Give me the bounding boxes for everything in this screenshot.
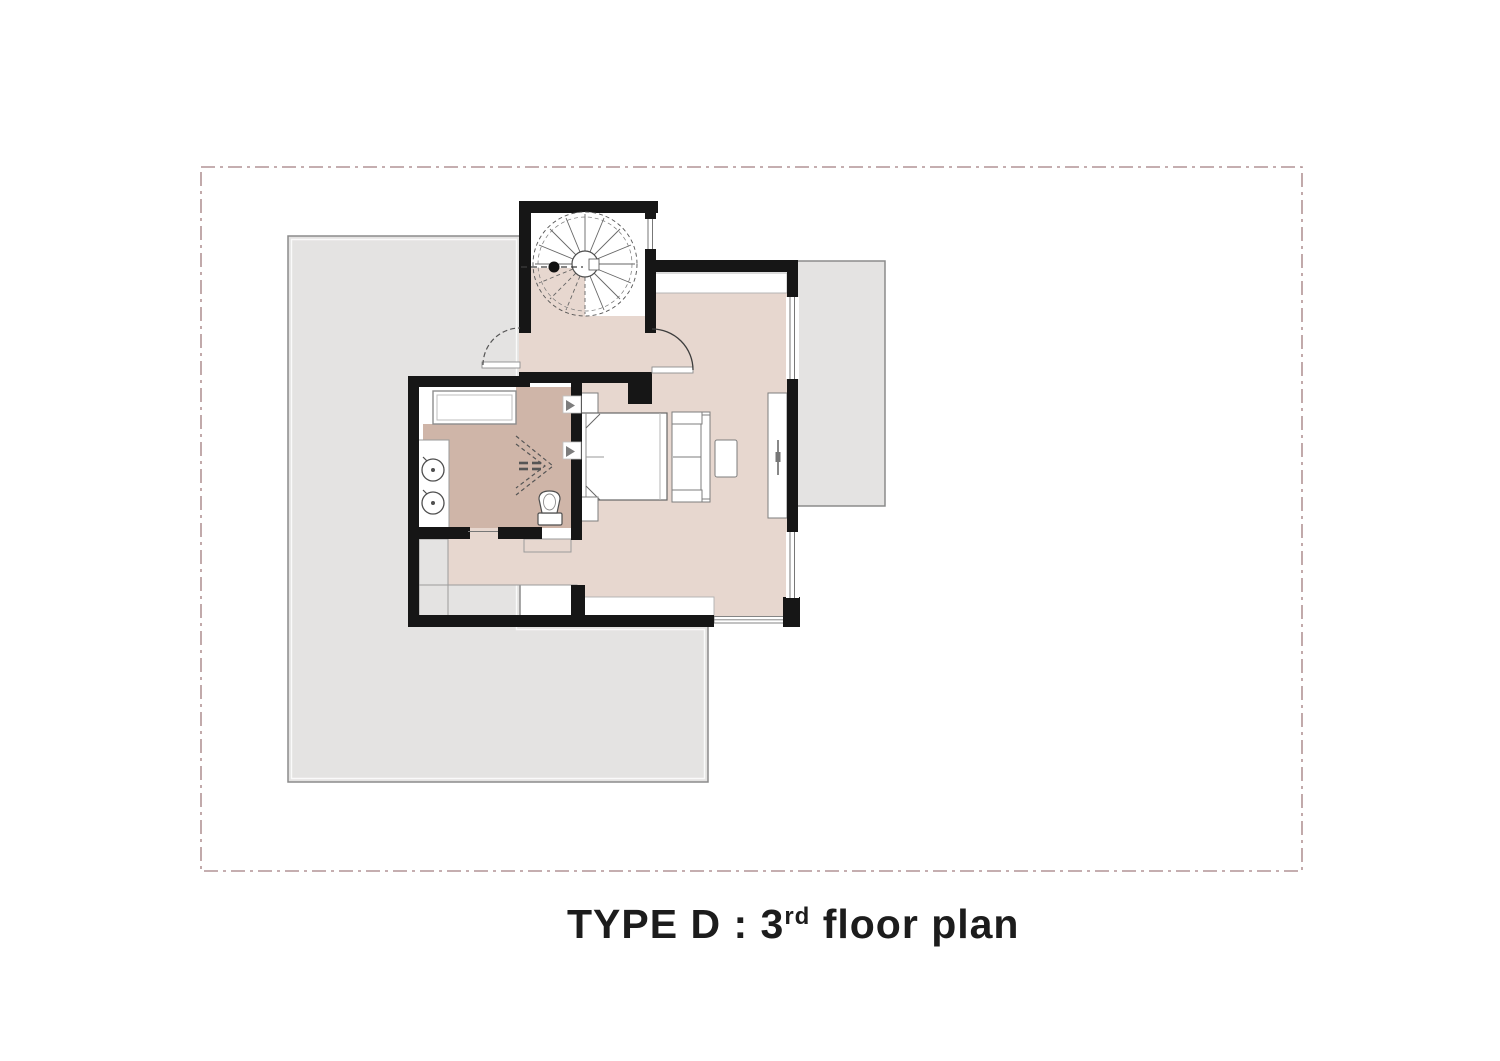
bed — [580, 413, 667, 500]
terrace-right — [794, 261, 885, 506]
plan-title-suffix: floor plan — [810, 901, 1019, 947]
hall-west-threshold — [519, 333, 530, 373]
sliding-window — [714, 617, 786, 624]
plan-title-text: TYPE D : 3 — [567, 901, 784, 947]
north-window-band — [648, 273, 787, 293]
toilet — [538, 491, 562, 525]
bathroom-door-gap — [468, 527, 500, 539]
stair-window — [644, 219, 657, 249]
floor-plan-page: TYPE D : 3rd floor plan — [0, 0, 1500, 1061]
vanity — [415, 440, 449, 528]
sofa — [672, 412, 710, 502]
bathtub — [433, 391, 516, 424]
stair-pole-dot — [549, 262, 560, 273]
plan-title-superscript: rd — [784, 903, 810, 930]
plan-title: TYPE D : 3rd floor plan — [567, 901, 1019, 948]
east-window-2 — [786, 532, 799, 598]
hall-east-threshold — [646, 333, 652, 373]
south-window-bench — [584, 597, 714, 616]
dresser — [768, 393, 787, 518]
east-window-1 — [786, 297, 799, 379]
corridor-floor — [448, 539, 582, 585]
coffee-table — [715, 440, 737, 477]
